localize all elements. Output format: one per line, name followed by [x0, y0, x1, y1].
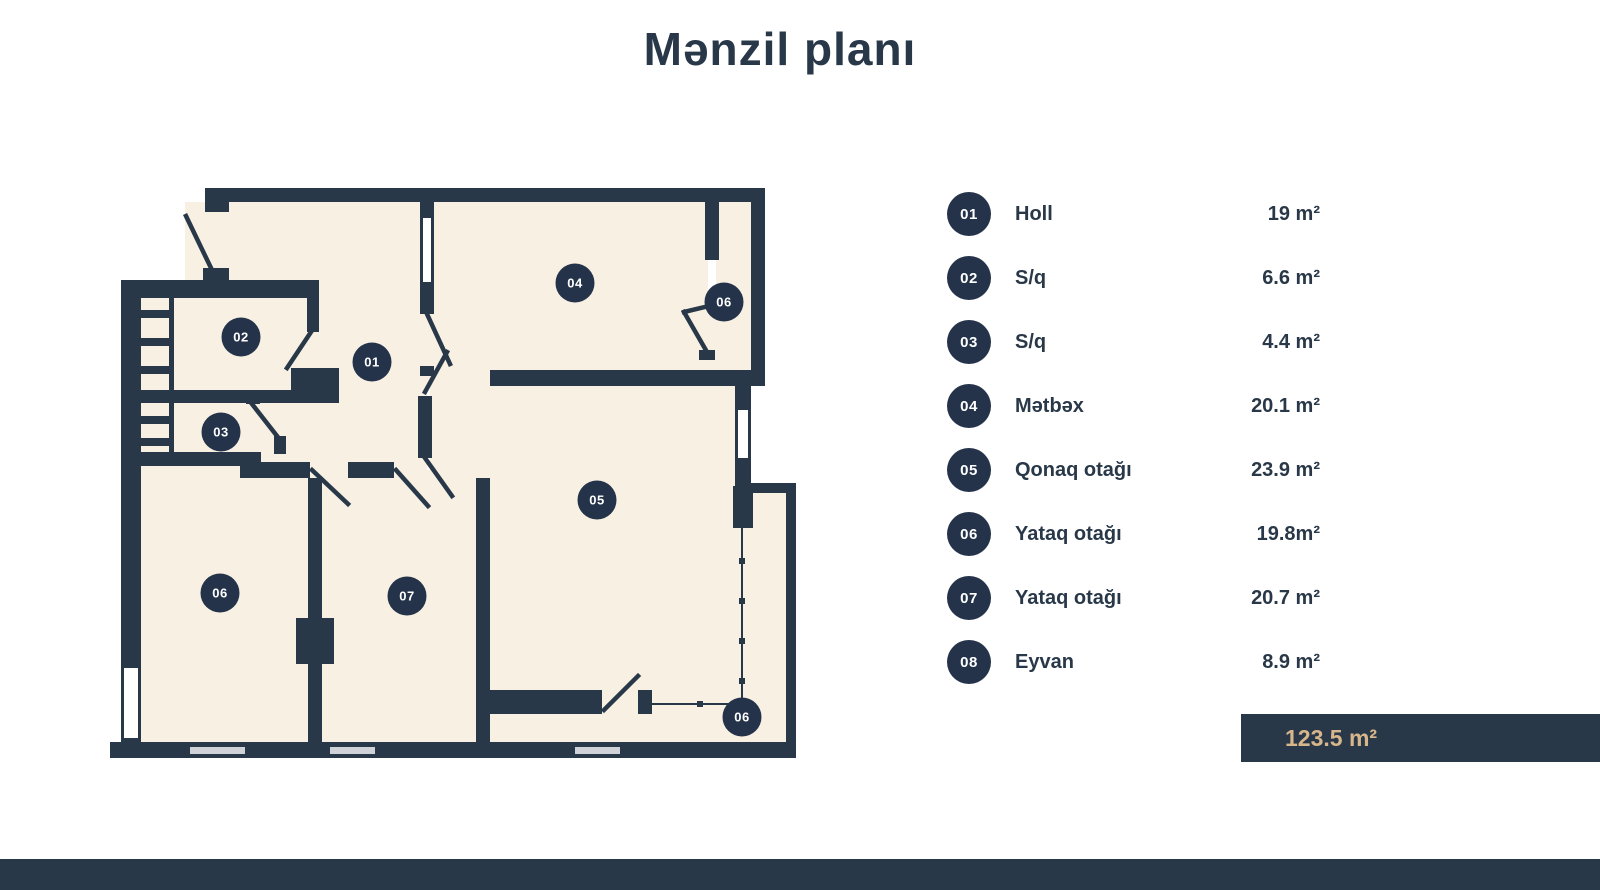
room-number-badge: 01	[947, 192, 991, 236]
legend-row: 06 Yataq otağı 19.8m²	[947, 512, 1320, 556]
room-area: 20.7 m²	[1251, 587, 1320, 610]
room-area: 8.9 m²	[1262, 651, 1320, 674]
room-area: 4.4 m²	[1262, 331, 1320, 354]
room-marker-06: 06	[705, 283, 744, 322]
room-label: Eyvan	[1015, 651, 1074, 674]
room-label: Qonaq otağı	[1015, 459, 1132, 482]
total-area-box: 123.5 m²	[1241, 714, 1600, 762]
legend-row: 01 Holl 19 m²	[947, 192, 1320, 236]
room-label: Holl	[1015, 203, 1053, 226]
room-area: 23.9 m²	[1251, 459, 1320, 482]
legend-row: 03 S/q 4.4 m²	[947, 320, 1320, 364]
room-number-badge: 03	[947, 320, 991, 364]
legend-row: 05 Qonaq otağı 23.9 m²	[947, 448, 1320, 492]
plan-floors	[131, 195, 790, 750]
room-area: 19 m²	[1268, 203, 1320, 226]
room-marker-06: 06	[201, 574, 240, 613]
room-area: 6.6 m²	[1262, 267, 1320, 290]
legend-row: 04 Mətbəx 20.1 m²	[947, 384, 1320, 428]
room-marker-07: 07	[388, 577, 427, 616]
room-marker-03: 03	[202, 413, 241, 452]
room-label: Mətbəx	[1015, 395, 1084, 418]
room-marker-01: 01	[353, 343, 392, 382]
room-area: 20.1 m²	[1251, 395, 1320, 418]
room-number-badge: 02	[947, 256, 991, 300]
page: Mənzil planı	[0, 0, 1600, 890]
legend-row: 02 S/q 6.6 m²	[947, 256, 1320, 300]
legend-row: 08 Eyvan 8.9 m²	[947, 640, 1320, 684]
room-marker-06: 06	[723, 698, 762, 737]
room-label: S/q	[1015, 267, 1046, 290]
room-number-badge: 05	[947, 448, 991, 492]
room-number-badge: 06	[947, 512, 991, 556]
total-area-value: 123.5 m²	[1285, 725, 1377, 751]
room-label: Yataq otağı	[1015, 523, 1122, 546]
room-number-badge: 04	[947, 384, 991, 428]
legend-row: 07 Yataq otağı 20.7 m²	[947, 576, 1320, 620]
room-legend: 01 Holl 19 m² 02 S/q 6.6 m² 03 S/q 4.4 m…	[947, 192, 1320, 704]
room-marker-02: 02	[222, 318, 261, 357]
room-label: S/q	[1015, 331, 1046, 354]
room-area: 19.8m²	[1257, 523, 1320, 546]
footer-bar	[0, 859, 1600, 890]
room-label: Yataq otağı	[1015, 587, 1122, 610]
room-number-badge: 07	[947, 576, 991, 620]
room-marker-05: 05	[578, 481, 617, 520]
room-number-badge: 08	[947, 640, 991, 684]
room-marker-04: 04	[556, 264, 595, 303]
